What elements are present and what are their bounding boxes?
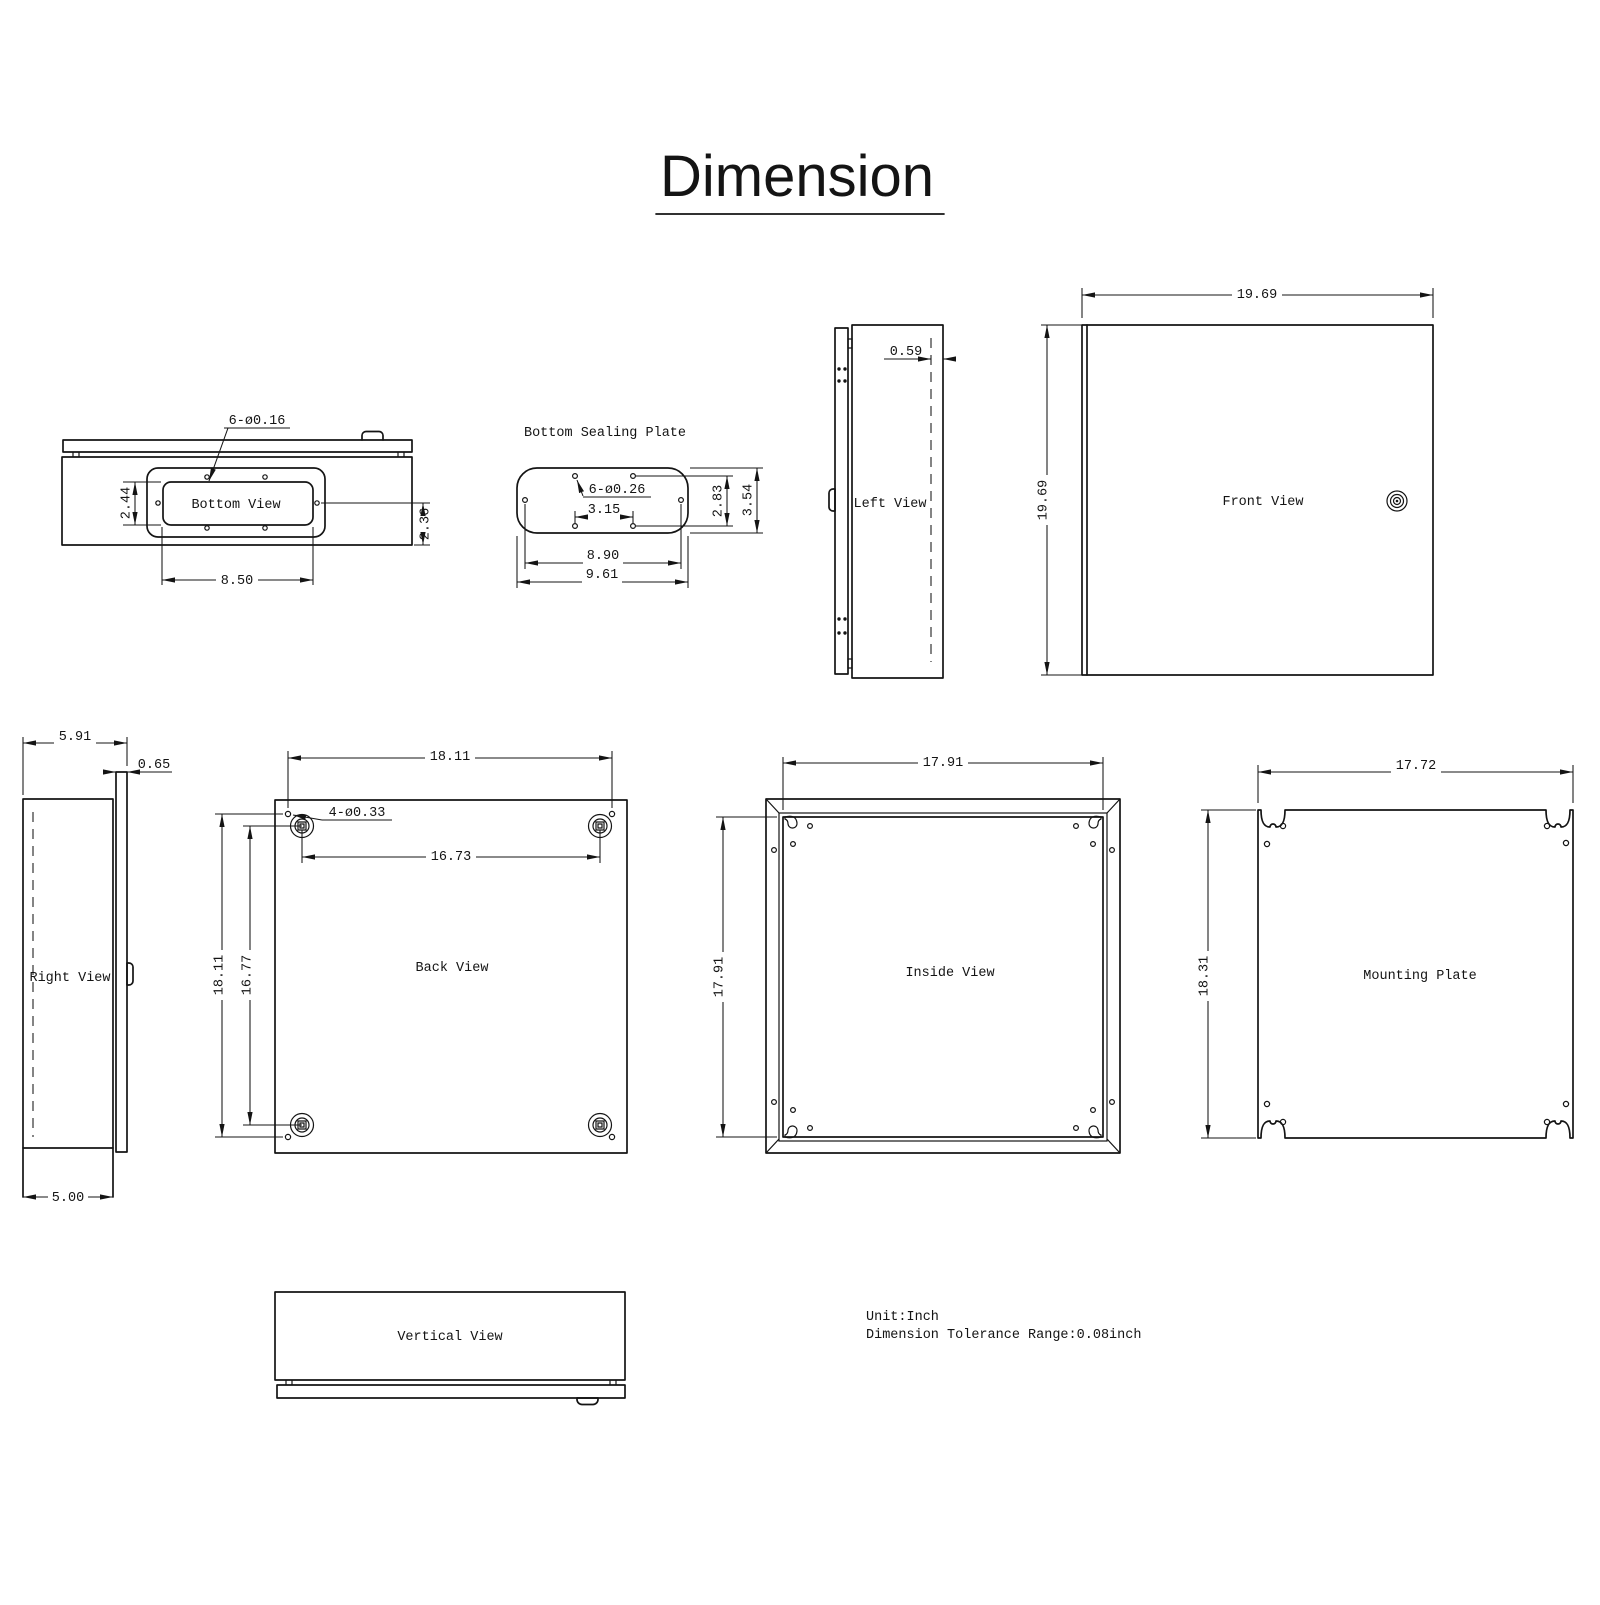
left-view-dim-door-inset: 0.59 xyxy=(890,345,922,360)
bottom-view-hole-callout: 6-ø0.16 xyxy=(229,414,286,429)
lock-center-dot xyxy=(1396,500,1399,503)
bottom-view-label: Bottom View xyxy=(191,498,280,513)
drawing-sheet: Dimension 6-ø0.16 2.44 8.50 2.36 Bottom … xyxy=(0,0,1600,1600)
sealing-plate-dim-hole-rows: 2.83 xyxy=(712,485,727,517)
front-view-dim-height: 19.69 xyxy=(1037,480,1052,521)
back-view-dim-hole-span-v: 18.11 xyxy=(213,955,228,996)
inside-view-dim-height: 17.91 xyxy=(713,957,728,998)
mounting-plate-dim-height: 18.31 xyxy=(1198,956,1213,997)
note-unit: Unit:Inch xyxy=(866,1310,939,1325)
back-view-dim-boss-span-v: 16.77 xyxy=(241,955,256,996)
inside-view-label: Inside View xyxy=(905,966,994,981)
back-view-label: Back View xyxy=(416,961,489,976)
mounting-plate-dim-width: 17.72 xyxy=(1396,759,1437,774)
bottom-view-dim-edge-offset: 2.36 xyxy=(419,508,434,540)
bottom-view-dim-cutout-height: 2.44 xyxy=(120,487,135,519)
lock-icon xyxy=(1387,491,1407,511)
canvas-background xyxy=(0,0,1600,1600)
back-view-dim-hole-span-h: 18.11 xyxy=(430,750,471,765)
right-view-label: Right View xyxy=(29,971,110,986)
bottom-view-dim-cutout-width: 8.50 xyxy=(221,574,253,589)
mounting-plate-label: Mounting Plate xyxy=(1363,969,1476,984)
front-view-label: Front View xyxy=(1222,495,1303,510)
back-view-hole-callout: 4-ø0.33 xyxy=(329,806,386,821)
sealing-plate-dim-center-holes: 3.15 xyxy=(588,503,620,518)
sealing-plate-dim-hole-span: 8.90 xyxy=(587,549,619,564)
sealing-plate-dim-height: 3.54 xyxy=(742,484,757,516)
vertical-view-label: Vertical View xyxy=(397,1330,502,1345)
inside-view-dim-width: 17.91 xyxy=(923,756,964,771)
sealing-plate-dim-width: 9.61 xyxy=(586,568,618,583)
back-view-dim-boss-span-h: 16.73 xyxy=(431,850,472,865)
right-view-dim-depth-total: 5.91 xyxy=(59,730,91,745)
front-view-dim-width: 19.69 xyxy=(1237,288,1278,303)
note-tolerance: Dimension Tolerance Range:0.08inch xyxy=(866,1328,1141,1343)
page-title: Dimension xyxy=(660,144,934,209)
right-view-dim-depth-body: 5.00 xyxy=(52,1191,84,1206)
title-block: Dimension xyxy=(656,144,944,214)
dimension-drawing: Dimension 6-ø0.16 2.44 8.50 2.36 Bottom … xyxy=(0,0,1600,1600)
right-view-dim-door-thickness: 0.65 xyxy=(138,758,170,773)
sealing-plate-label: Bottom Sealing Plate xyxy=(524,426,686,441)
sealing-plate-hole-callout: 6-ø0.26 xyxy=(589,483,646,498)
left-view-label: Left View xyxy=(854,497,927,512)
